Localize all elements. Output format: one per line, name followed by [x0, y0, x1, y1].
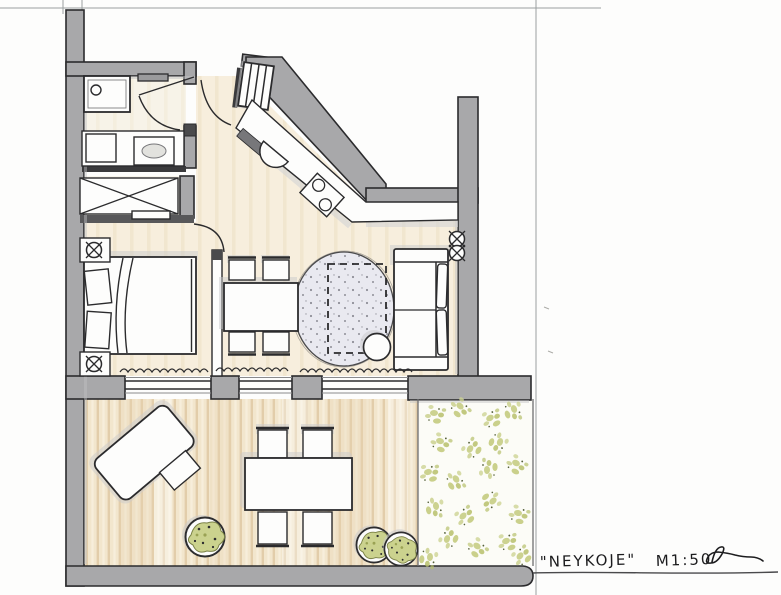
facade-pillar: [292, 376, 322, 399]
bath-shelf: [138, 74, 168, 81]
sofa-cushion: [436, 264, 448, 308]
dining-chair: [263, 332, 289, 352]
signature-line: [533, 572, 778, 573]
outdoor-chair: [303, 430, 332, 458]
floor-plan-page: "NEYKOJE" M1:50: [0, 0, 781, 595]
lamp-symbol: [86, 242, 102, 258]
facade-pillar: [211, 376, 239, 399]
wardrobe-step: [132, 211, 170, 219]
dining-chair: [263, 260, 289, 280]
dining-chair: [229, 260, 255, 280]
side-table: [364, 334, 391, 361]
wardrobe-side-wall: [180, 176, 194, 218]
lamp-symbol: [86, 356, 102, 372]
window: [322, 378, 408, 394]
window: [125, 378, 211, 394]
window: [239, 378, 292, 394]
plan-scale: M1:50: [656, 550, 713, 570]
sofa-cushion: [436, 310, 448, 355]
signature-flourish-icon: [707, 547, 763, 563]
bathroom-south-wall: [82, 166, 186, 172]
outdoor-chair: [258, 430, 287, 458]
outdoor-chair: [258, 512, 287, 544]
bathroom-north-wall: [66, 62, 196, 76]
wardrobe: [80, 178, 178, 219]
shower: [84, 76, 130, 112]
plan-title: "NEYKOJE": [540, 550, 637, 571]
washbasin-icon: [142, 144, 166, 158]
toilet: [86, 134, 116, 162]
facade-corner-pillar: [66, 376, 125, 399]
outdoor-table: [245, 458, 352, 510]
pillow: [84, 269, 111, 305]
pillow: [85, 311, 111, 349]
outdoor-chair: [303, 512, 332, 544]
floor-plan-drawing: "NEYKOJE" M1:50: [0, 0, 781, 595]
bathroom-east-wall-upper: [184, 62, 196, 84]
dining-table: [224, 283, 298, 331]
door-jamb-block: [184, 124, 196, 136]
plan-annotation: "NEYKOJE" M1:50: [533, 547, 778, 573]
garden-north-wall: [408, 376, 531, 400]
south-wall-windows: [125, 378, 408, 394]
dining-chair: [229, 332, 255, 352]
outlet-symbol: [449, 231, 465, 247]
west-wall: [66, 10, 84, 586]
outlet-symbol: [449, 245, 465, 261]
south-boundary-wall: [66, 566, 533, 586]
